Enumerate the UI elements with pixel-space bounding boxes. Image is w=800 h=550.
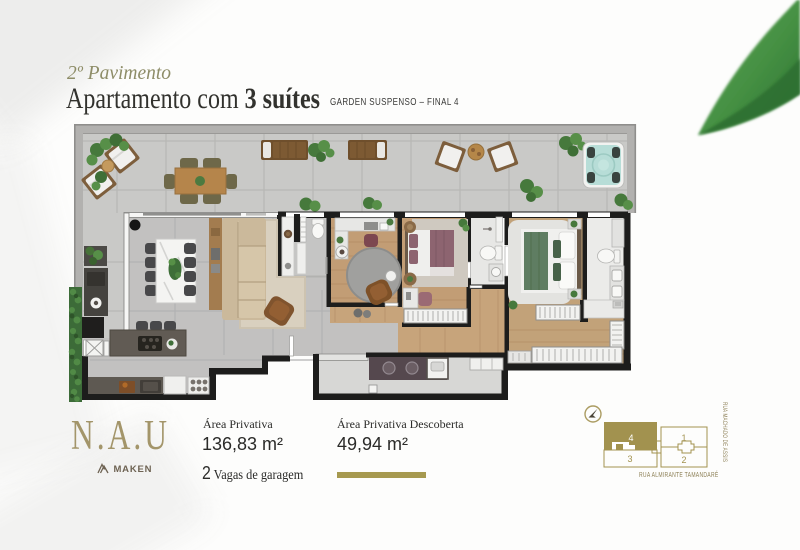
svg-text:1: 1 [681, 433, 686, 443]
svg-text:4: 4 [628, 433, 633, 443]
svg-text:3: 3 [627, 454, 632, 464]
svg-text:2: 2 [681, 455, 686, 465]
